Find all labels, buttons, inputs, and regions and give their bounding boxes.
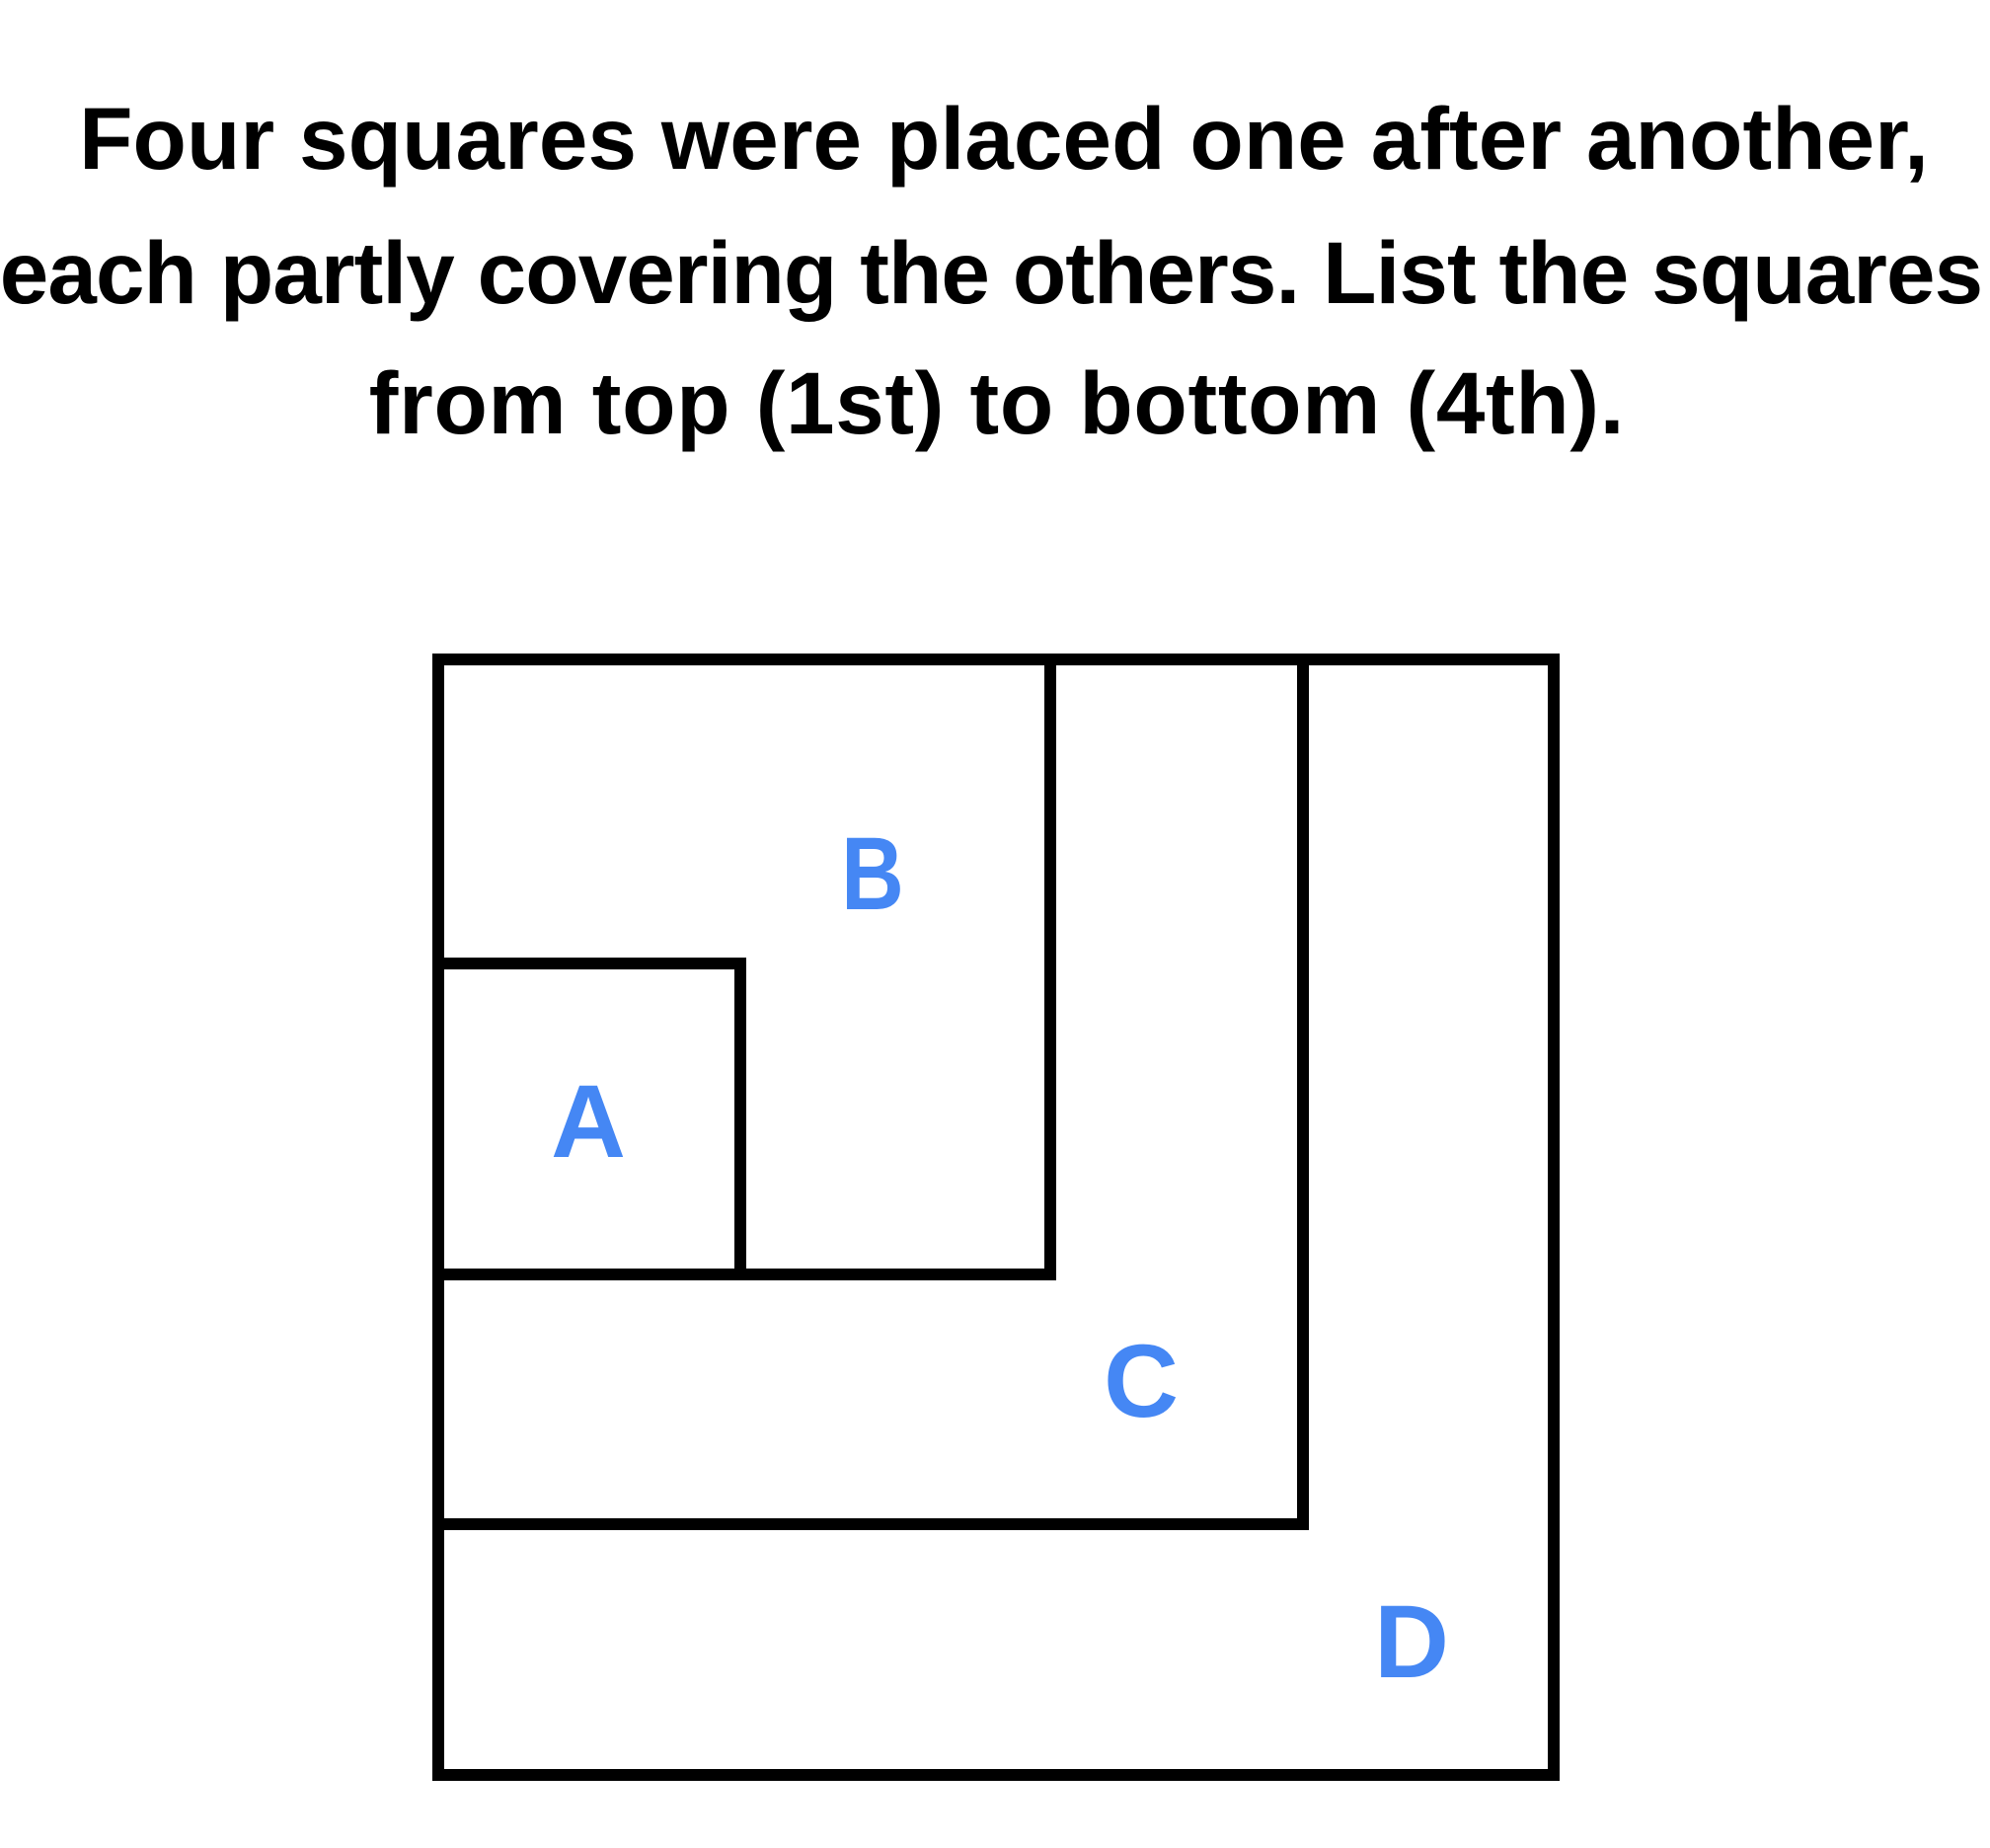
svg-text:B: B xyxy=(841,815,904,932)
svg-text:D: D xyxy=(1374,1584,1449,1700)
svg-text:C: C xyxy=(1104,1324,1179,1439)
svg-text:A: A xyxy=(551,1064,626,1180)
